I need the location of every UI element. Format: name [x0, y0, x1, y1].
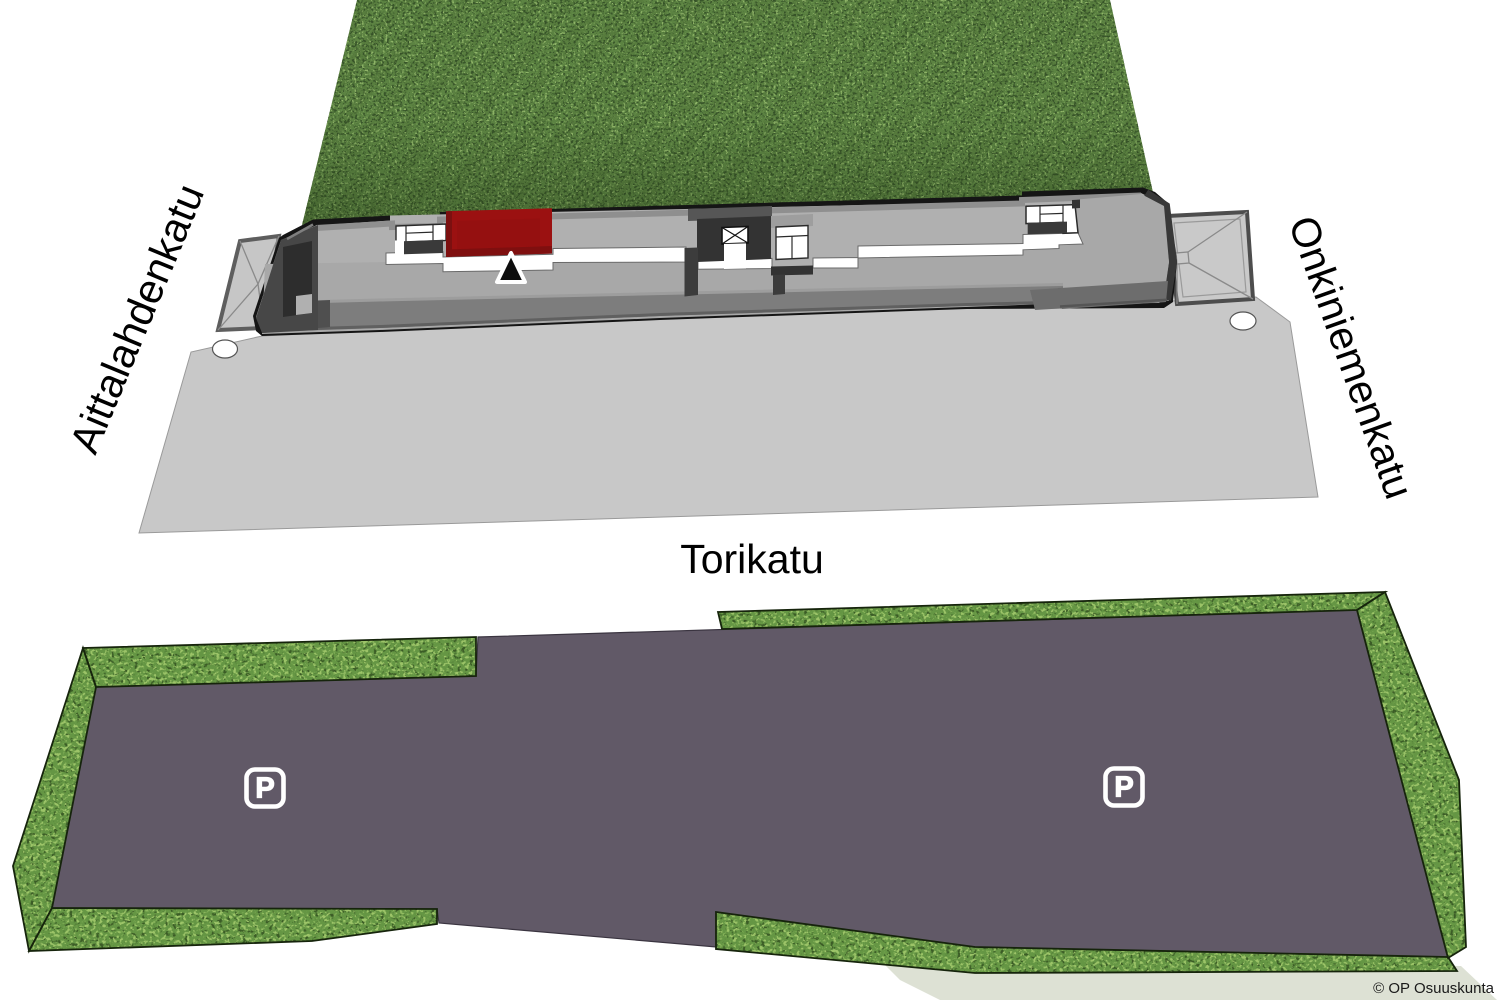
svg-text:P: P [1114, 772, 1133, 804]
svg-text:© OP Osuuskunta: © OP Osuuskunta [1373, 980, 1494, 997]
svg-text:P: P [255, 773, 274, 805]
svg-text:Torikatu: Torikatu [680, 536, 824, 582]
